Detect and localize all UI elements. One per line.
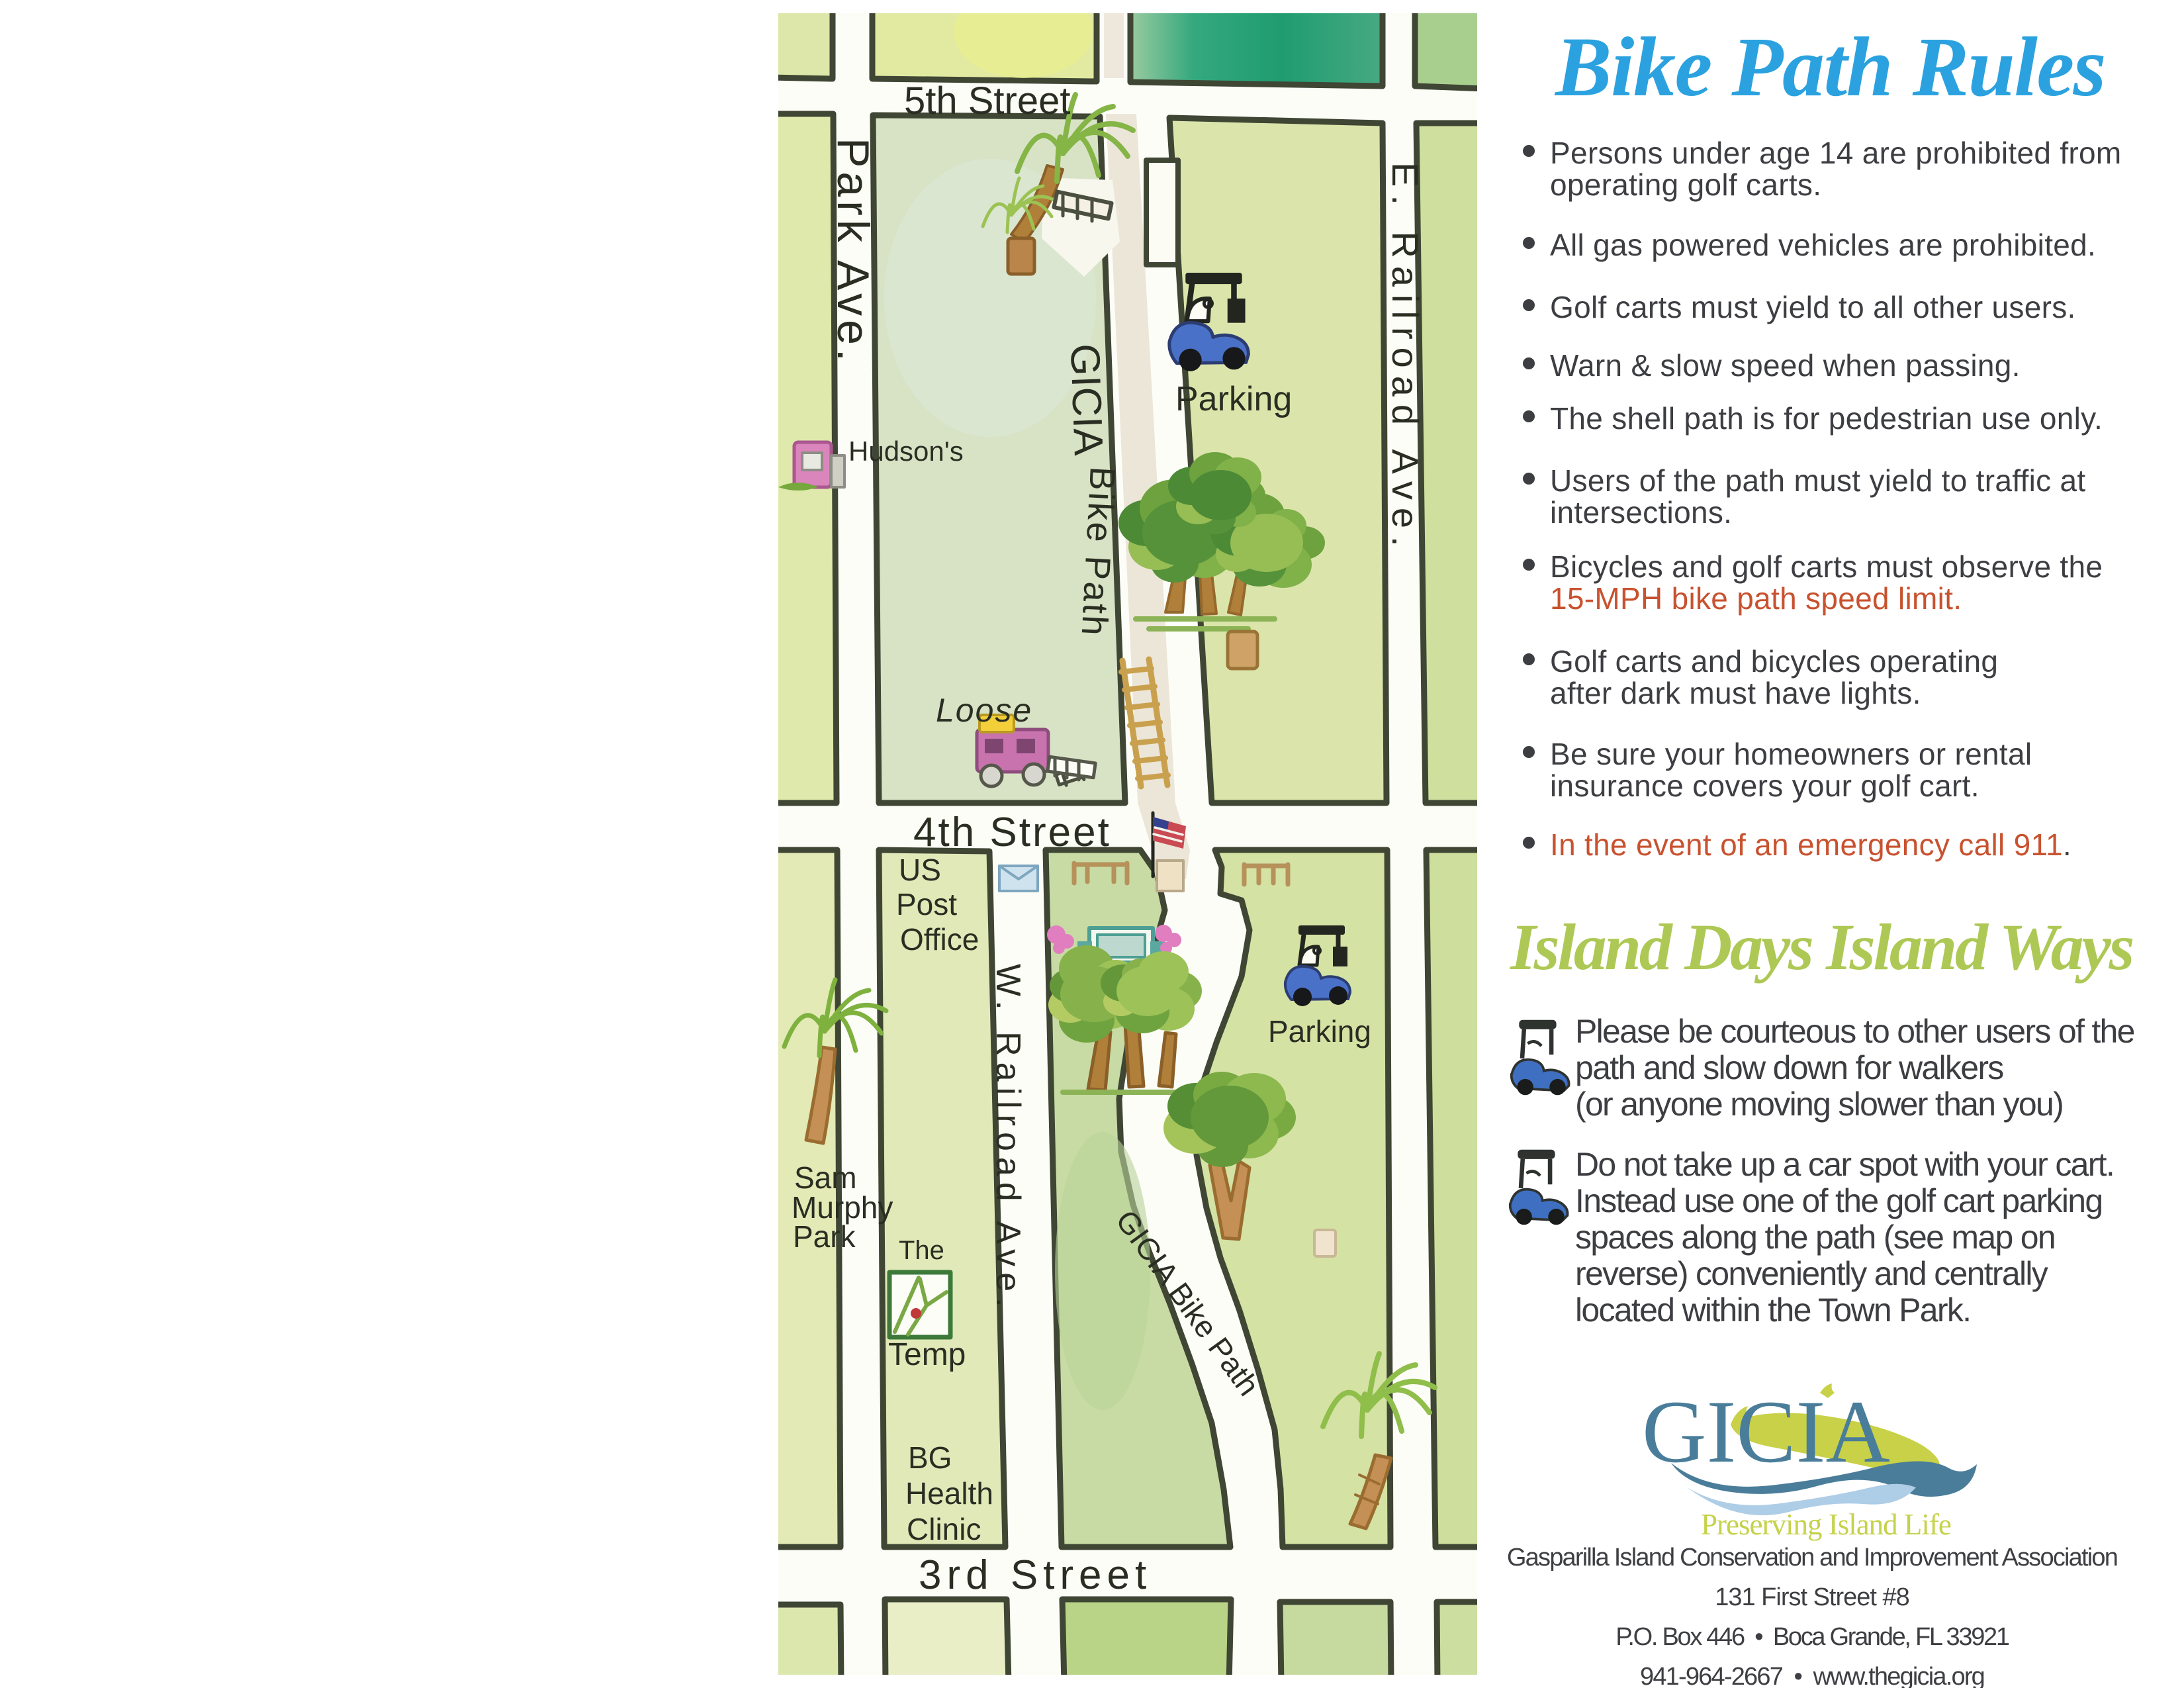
- svg-text:US: US: [899, 853, 941, 887]
- svg-text:Parking: Parking: [1175, 380, 1292, 418]
- svg-text:Loose: Loose: [936, 692, 1032, 729]
- svg-text:GICIA: GICIA: [1062, 343, 1111, 457]
- svg-text:Temp: Temp: [888, 1337, 966, 1372]
- svg-text:Health: Health: [905, 1476, 993, 1511]
- svg-text:E. Railroad Ave.: E. Railroad Ave.: [1385, 162, 1426, 555]
- svg-text:Park: Park: [793, 1219, 856, 1254]
- svg-text:Hudson's: Hudson's: [848, 436, 964, 467]
- svg-text:Clinic: Clinic: [907, 1512, 981, 1546]
- svg-text:The: The: [899, 1236, 944, 1265]
- svg-text:Park Ave.: Park Ave.: [828, 138, 878, 365]
- svg-text:Post: Post: [896, 887, 957, 921]
- svg-text:3rd Street: 3rd Street: [919, 1552, 1152, 1598]
- svg-text:4th Street: 4th Street: [913, 810, 1111, 855]
- svg-text:BG: BG: [908, 1440, 952, 1475]
- svg-text:Parking: Parking: [1268, 1014, 1371, 1049]
- svg-text:Office: Office: [900, 922, 979, 957]
- svg-text:GICIA: GICIA: [1642, 1383, 1890, 1481]
- svg-text:W. Railroad Ave.: W. Railroad Ave.: [989, 964, 1027, 1313]
- svg-text:5th Street: 5th Street: [904, 79, 1070, 122]
- svg-text:Preserving Island Life: Preserving Island Life: [1701, 1508, 1951, 1541]
